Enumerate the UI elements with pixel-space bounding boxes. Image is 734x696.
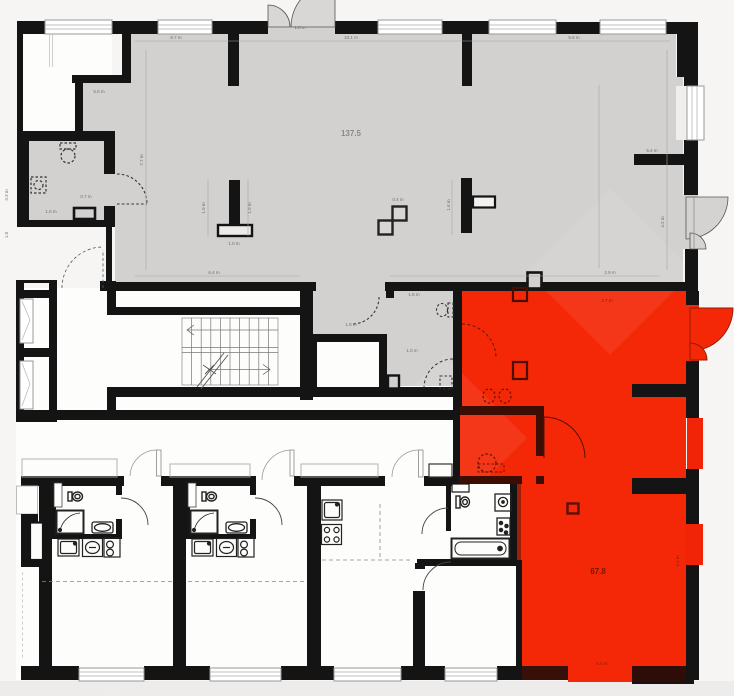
svg-text:3.3 m: 3.3 m [4,189,9,201]
svg-text:6.4 m: 6.4 m [208,270,220,275]
svg-text:0.7 m: 0.7 m [80,194,92,199]
svg-text:1.0 m: 1.0 m [406,348,418,353]
svg-text:1.9 m: 1.9 m [201,202,206,214]
svg-text:2.9 m: 2.9 m [604,270,616,275]
svg-text:8.7 m: 8.7 m [170,35,182,40]
svg-text:1.8 m: 1.8 m [345,322,357,327]
svg-text:1.9 m: 1.9 m [247,202,252,214]
svg-text:5.6 m: 5.6 m [568,35,580,40]
svg-text:5.4 m: 5.4 m [646,148,658,153]
svg-text:7.7 m: 7.7 m [139,154,144,166]
svg-text:5.0 m: 5.0 m [93,89,105,94]
svg-text:0.4 m: 0.4 m [392,197,404,202]
svg-text:1.6 m: 1.6 m [408,292,420,297]
svg-text:1.0 m: 1.0 m [228,241,240,246]
svg-text:1.0: 1.0 [4,231,9,238]
svg-text:5.6 m: 5.6 m [596,661,608,666]
svg-text:10.1 m: 10.1 m [344,35,358,40]
svg-text:137.5: 137.5 [341,129,362,138]
svg-text:1.0 m: 1.0 m [45,209,57,214]
svg-text:2.7 m: 2.7 m [601,298,613,303]
svg-text:4.2 m: 4.2 m [660,216,665,228]
svg-text:3.1 m: 3.1 m [675,555,680,567]
svg-text:67.8: 67.8 [590,567,606,576]
svg-text:1.6 m: 1.6 m [446,199,451,211]
svg-text:1.8 m: 1.8 m [294,25,306,30]
